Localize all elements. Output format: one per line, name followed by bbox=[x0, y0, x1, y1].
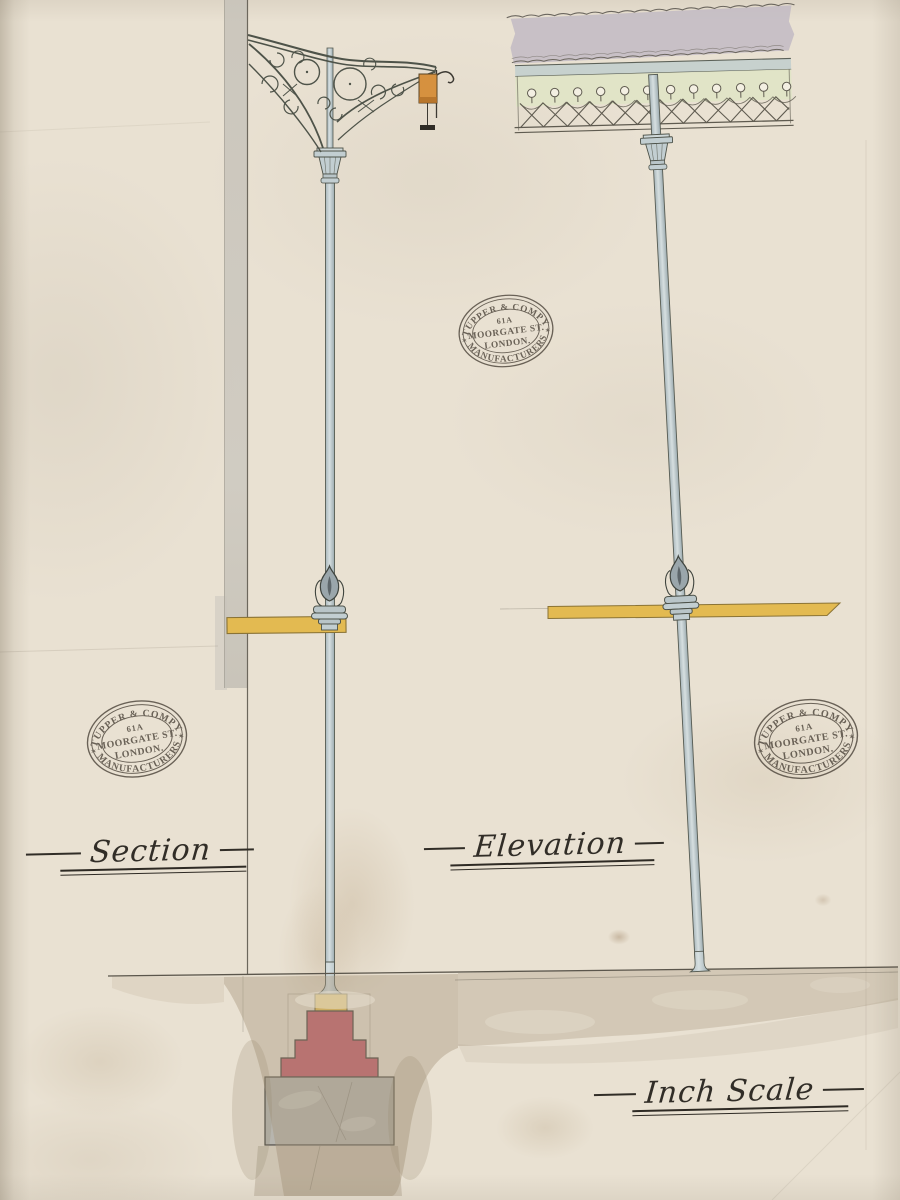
bracket-scrollwork bbox=[248, 35, 436, 152]
stamp-left: TUPPER & COMPY MANUFACTURERS 61A MOORGAT… bbox=[81, 693, 192, 784]
elevation-pole bbox=[649, 74, 704, 959]
section-caption: Section bbox=[26, 834, 255, 876]
elevation-pole-capital bbox=[640, 134, 674, 171]
stamp-number: 61A bbox=[795, 721, 814, 734]
stamp-number: 61A bbox=[496, 315, 513, 326]
wall-band bbox=[215, 0, 248, 1032]
star-ornament-icon: ✶ bbox=[848, 731, 857, 742]
elevation-caption-text: Elevation bbox=[472, 829, 626, 863]
technical-drawing: TUPPER & COMPY MANUFACTURERS 61A MOORGAT… bbox=[0, 0, 900, 1200]
flourish-dash bbox=[594, 1093, 636, 1096]
inch-scale-caption: Inch Scale bbox=[594, 1074, 865, 1117]
section-pole-capital bbox=[314, 148, 346, 183]
stamp-number: 61A bbox=[126, 721, 145, 734]
flourish-dash bbox=[26, 852, 81, 855]
flourish-dash bbox=[424, 847, 465, 850]
star-ornament-icon: ✶ bbox=[177, 731, 186, 741]
flourish-dash bbox=[220, 848, 254, 851]
stamp-right: TUPPER & COMPY MANUFACTURERS 61A MOORGAT… bbox=[749, 692, 863, 785]
star-ornament-icon: ✶ bbox=[756, 745, 765, 756]
elevation-caption: Elevation bbox=[424, 828, 665, 871]
stamp-center: TUPPER & COMPY MANUFACTURERS 61A MOORGAT… bbox=[455, 290, 557, 372]
flourish-dash bbox=[635, 842, 664, 845]
drawing-sheet: TUPPER & COMPY MANUFACTURERS 61A MOORGAT… bbox=[0, 0, 900, 1200]
inch-scale-caption-text: Inch Scale bbox=[644, 1075, 816, 1109]
section-caption-text: Section bbox=[89, 835, 213, 868]
star-ornament-icon: ✶ bbox=[544, 325, 552, 335]
bracket-sign-fitting bbox=[419, 70, 454, 130]
star-ornament-icon: ✶ bbox=[461, 336, 469, 346]
star-ornament-icon: ✶ bbox=[90, 746, 99, 756]
flourish-dash bbox=[823, 1088, 864, 1091]
